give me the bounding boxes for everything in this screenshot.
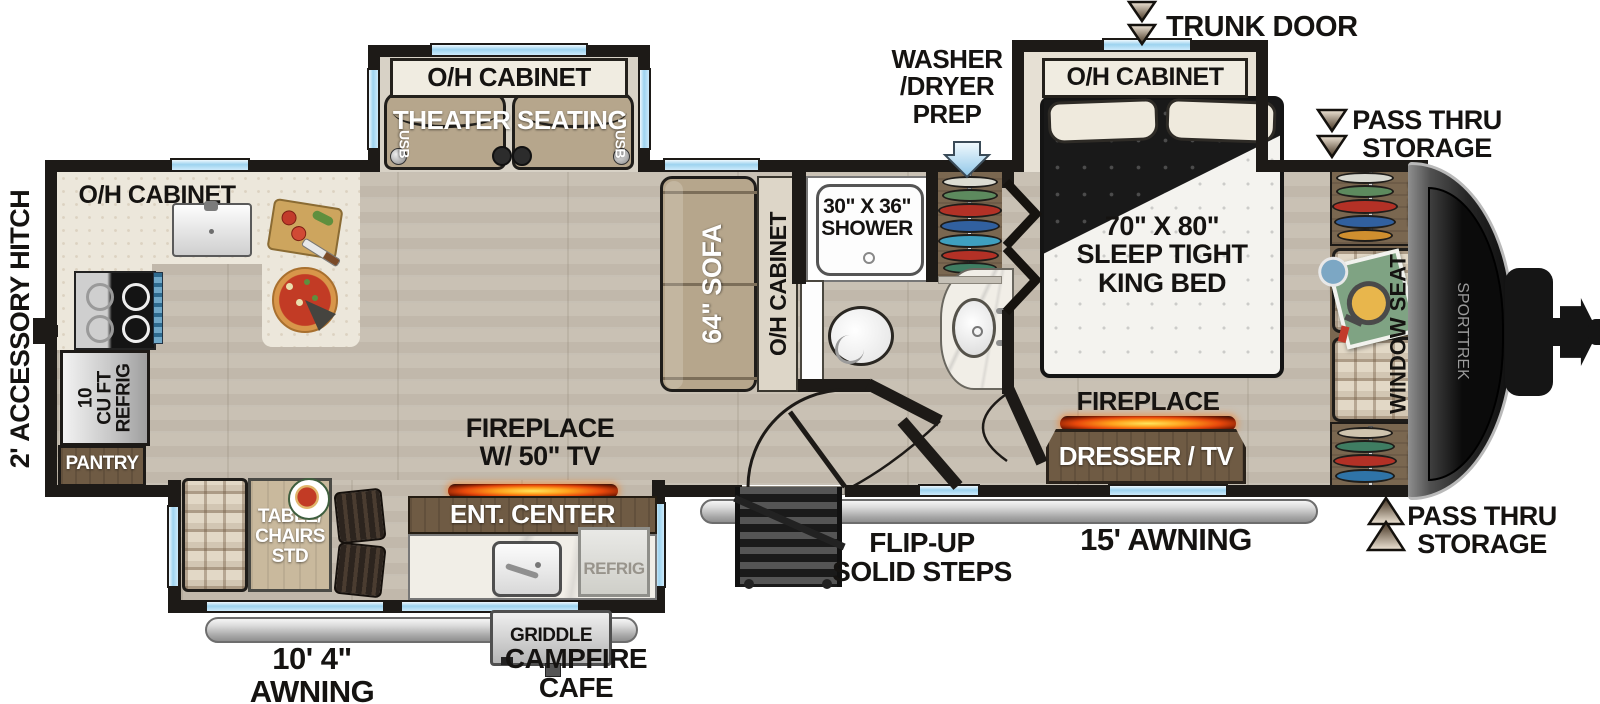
fireplace-tv-label: FIREPLACE W/ 50" TV xyxy=(440,414,640,471)
rear-slide-window-bottom xyxy=(205,600,385,613)
pizza-plate-icon xyxy=(288,478,330,520)
shower-label: 30" X 36" SHOWER xyxy=(814,196,920,240)
bath-wall xyxy=(798,379,870,392)
bath-wall xyxy=(792,172,806,284)
bedroom-fireplace-label: FIREPLACE xyxy=(1048,388,1248,415)
exterior-wall-bottom xyxy=(45,485,181,497)
bedroom-window xyxy=(1108,484,1228,497)
pizza-icon xyxy=(272,267,338,333)
washer-prep-arrow-icon xyxy=(942,140,992,180)
window-seat-label: WINDOW SEAT xyxy=(1386,254,1409,414)
brand-logo: SPORTTREK xyxy=(1453,282,1471,380)
rear-awning-label: 10' 4" AWNING xyxy=(212,643,412,704)
bed-pillow xyxy=(1047,98,1158,144)
main-awning-label: 15' AWNING xyxy=(1066,524,1266,557)
cutting-board-icon xyxy=(266,198,343,260)
floorplan-diagram: O/H CABINET 10 CU FT REFRIG PANTRY 64" S… xyxy=(0,0,1600,704)
theater-oh-cabinet-label: O/H CABINET xyxy=(390,64,628,91)
usb-left-label: USB xyxy=(397,130,412,158)
dinette-chair xyxy=(333,488,386,545)
outdoor-sink-icon xyxy=(492,541,562,597)
kitchen-refrig-label: 10 CU FT REFRIG xyxy=(77,364,134,433)
theater-window-right xyxy=(638,68,651,150)
vanity-sink-icon xyxy=(952,298,996,358)
kitchen-window xyxy=(170,158,250,172)
toilet-icon xyxy=(828,306,894,366)
bedroom-fireplace-glow xyxy=(1060,416,1236,431)
pass-thru-top-arrow-icon xyxy=(1314,108,1350,164)
pass-thru-top-label: PASS THRU STORAGE xyxy=(1352,106,1502,163)
dinette-bench xyxy=(182,478,248,592)
shower-drain xyxy=(863,252,875,264)
cooktop-icon xyxy=(74,271,156,350)
rear-slide-window-left xyxy=(167,505,180,588)
hitch-ball-icon xyxy=(1588,319,1600,345)
outdoor-refrig-label: REFRIG xyxy=(578,560,650,578)
dinette-chair xyxy=(333,542,386,599)
entry-side-window xyxy=(918,484,980,497)
bed-slide-wall xyxy=(1256,40,1268,172)
dresser-tv-label: DRESSER / TV xyxy=(1046,443,1246,470)
closet-threshold xyxy=(938,276,1002,284)
pantry-label: PANTRY xyxy=(58,454,146,474)
theater-seating-label: THEATER SEATING xyxy=(383,107,637,134)
utensil-rail xyxy=(153,272,163,344)
sofa-oh-cabinet-label: O/H CABINET xyxy=(766,212,790,356)
rear-hitch-stub xyxy=(42,325,58,337)
pass-thru-bottom-label: PASS THRU STORAGE xyxy=(1404,502,1560,559)
kitchen-sink-icon xyxy=(172,203,252,257)
ent-center-label: ENT. CENTER xyxy=(408,501,657,528)
trunk-door-label: TRUNK DOOR xyxy=(1166,12,1358,42)
sofa-window xyxy=(663,158,760,172)
trunk-door-arrow-icon xyxy=(1125,0,1159,48)
bedroom-oh-cabinet-label: O/H CABINET xyxy=(1042,64,1248,90)
washer-dryer-prep-label: WASHER /DRYER PREP xyxy=(877,46,1017,128)
cupholder-icon xyxy=(492,146,512,166)
theater-window-left xyxy=(367,68,380,150)
theater-window xyxy=(430,43,588,57)
flip-up-steps-label: FLIP-UP SOLID STEPS xyxy=(822,528,1022,587)
accessory-hitch-label: 2' ACCESSORY HITCH xyxy=(6,190,34,468)
cupholder-icon xyxy=(512,146,532,166)
toilet-partition xyxy=(800,280,824,386)
bath-wall xyxy=(1002,310,1014,394)
exterior-wall-bottom xyxy=(663,485,742,497)
bath-wall xyxy=(926,172,938,282)
bath-wall xyxy=(1002,172,1014,188)
usb-right-label: USB xyxy=(613,130,628,158)
pass-thru-bottom-arrow-icon xyxy=(1364,496,1408,552)
campfire-cafe-label: CAMPFIRE CAFE xyxy=(490,644,662,703)
sofa-label: 64" SOFA xyxy=(698,224,726,344)
king-bed-label: 70" X 80" SLEEP TIGHT KING BED xyxy=(1046,212,1278,297)
